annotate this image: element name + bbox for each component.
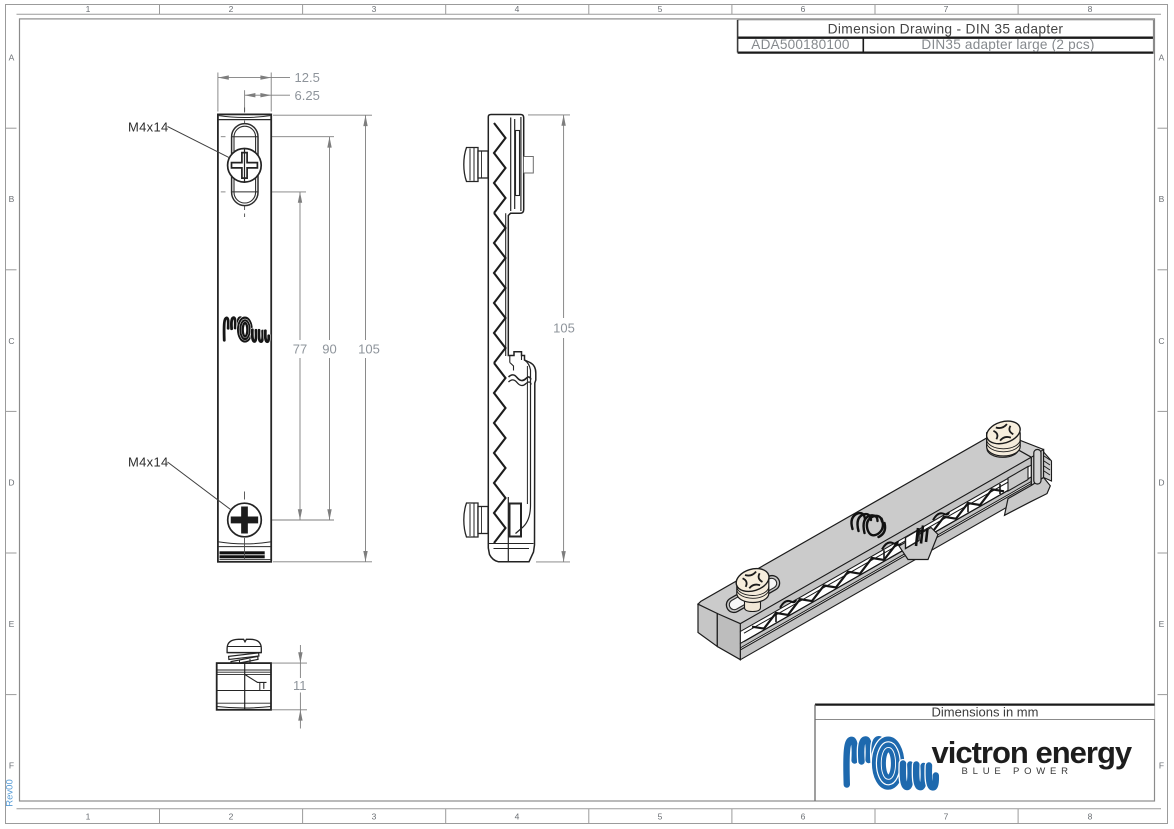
svg-text:C: C [8,336,14,346]
svg-text:3: 3 [372,4,377,14]
svg-text:90: 90 [322,342,336,357]
svg-text:DIN35 adapter large (2 pcs): DIN35 adapter large (2 pcs) [921,37,1094,52]
svg-text:7: 7 [944,4,949,14]
svg-text:A: A [1159,53,1165,63]
svg-text:C: C [1158,336,1164,346]
svg-text:E: E [1159,619,1165,629]
svg-text:12.5: 12.5 [295,70,320,85]
svg-text:7: 7 [944,812,949,822]
svg-text:4: 4 [515,4,520,14]
svg-text:6: 6 [801,4,806,14]
svg-text:8: 8 [1088,4,1093,14]
svg-text:E: E [9,619,15,629]
svg-text:Dimension Drawing - DIN 35 ada: Dimension Drawing - DIN 35 adapter [828,22,1064,37]
svg-text:D: D [1158,477,1164,487]
svg-text:Dimensions in mm: Dimensions in mm [932,704,1039,719]
svg-text:4: 4 [515,812,520,822]
svg-text:6: 6 [801,812,806,822]
svg-text:8: 8 [1088,812,1093,822]
svg-text:Rev00: Rev00 [5,779,16,806]
svg-text:1: 1 [86,812,91,822]
svg-text:ADA500180100: ADA500180100 [751,37,850,52]
svg-text:2: 2 [229,4,234,14]
svg-text:F: F [9,761,14,771]
svg-text:F: F [1159,761,1164,771]
svg-text:3: 3 [372,812,377,822]
svg-text:B: B [9,194,15,204]
svg-text:BLUE POWER: BLUE POWER [962,766,1073,777]
svg-text:2: 2 [229,812,234,822]
svg-text:6.25: 6.25 [295,88,320,103]
svg-text:M4x14: M4x14 [128,455,169,470]
svg-text:D: D [8,477,14,487]
svg-text:5: 5 [658,812,663,822]
svg-text:1: 1 [86,4,91,14]
svg-text:77: 77 [293,342,307,357]
svg-text:5: 5 [658,4,663,14]
svg-text:M4x14: M4x14 [128,120,169,135]
svg-text:105: 105 [553,321,575,336]
svg-text:victron energy: victron energy [932,735,1133,770]
svg-text:105: 105 [358,342,380,357]
svg-text:A: A [9,53,15,63]
svg-text:11: 11 [293,678,307,693]
svg-text:B: B [1159,194,1165,204]
